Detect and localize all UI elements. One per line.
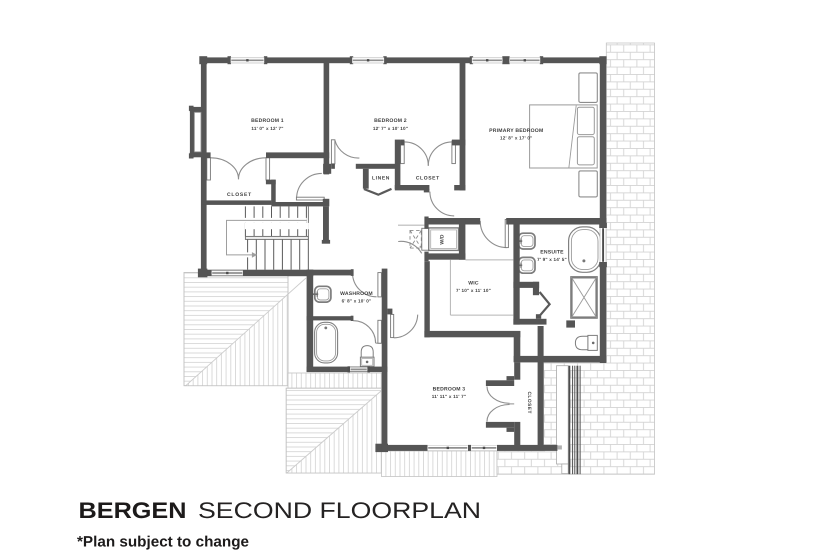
svg-text:PRIMARY BEDROOM: PRIMARY BEDROOM: [489, 128, 543, 134]
svg-text:WIC: WIC: [468, 280, 479, 286]
svg-text:CLOSET: CLOSET: [526, 391, 532, 413]
svg-text:BERGEN: BERGEN: [79, 498, 187, 523]
svg-text:CLOSET: CLOSET: [416, 176, 440, 182]
svg-text:BEDROOM 1: BEDROOM 1: [251, 118, 284, 124]
svg-text:SECOND FLOORPLAN: SECOND FLOORPLAN: [198, 498, 481, 523]
svg-text:6' 8" x 10' 0": 6' 8" x 10' 0": [342, 298, 372, 303]
svg-text:W/D: W/D: [440, 234, 446, 245]
svg-text:11' 11" x 11' 7": 11' 11" x 11' 7": [432, 394, 467, 399]
svg-text:7' 9" x 14' 5": 7' 9" x 14' 5": [537, 257, 567, 262]
svg-text:ENSUITE: ENSUITE: [540, 249, 564, 255]
svg-text:11' 0" x 12' 7": 11' 0" x 12' 7": [251, 126, 283, 131]
svg-text:12' 7" x 10' 10": 12' 7" x 10' 10": [373, 126, 408, 131]
svg-text:LINEN: LINEN: [372, 176, 390, 182]
svg-text:WASHROOM: WASHROOM: [340, 291, 373, 297]
svg-text:BEDROOM 3: BEDROOM 3: [433, 386, 466, 392]
svg-text:BEDROOM 2: BEDROOM 2: [374, 118, 407, 124]
svg-text:CLOSET: CLOSET: [227, 192, 252, 198]
svg-text:12' 8" x 17' 0": 12' 8" x 17' 0": [500, 136, 533, 141]
svg-text:7' 10" x 11' 10": 7' 10" x 11' 10": [456, 288, 491, 293]
svg-text:*Plan subject to change: *Plan subject to change: [77, 534, 249, 551]
